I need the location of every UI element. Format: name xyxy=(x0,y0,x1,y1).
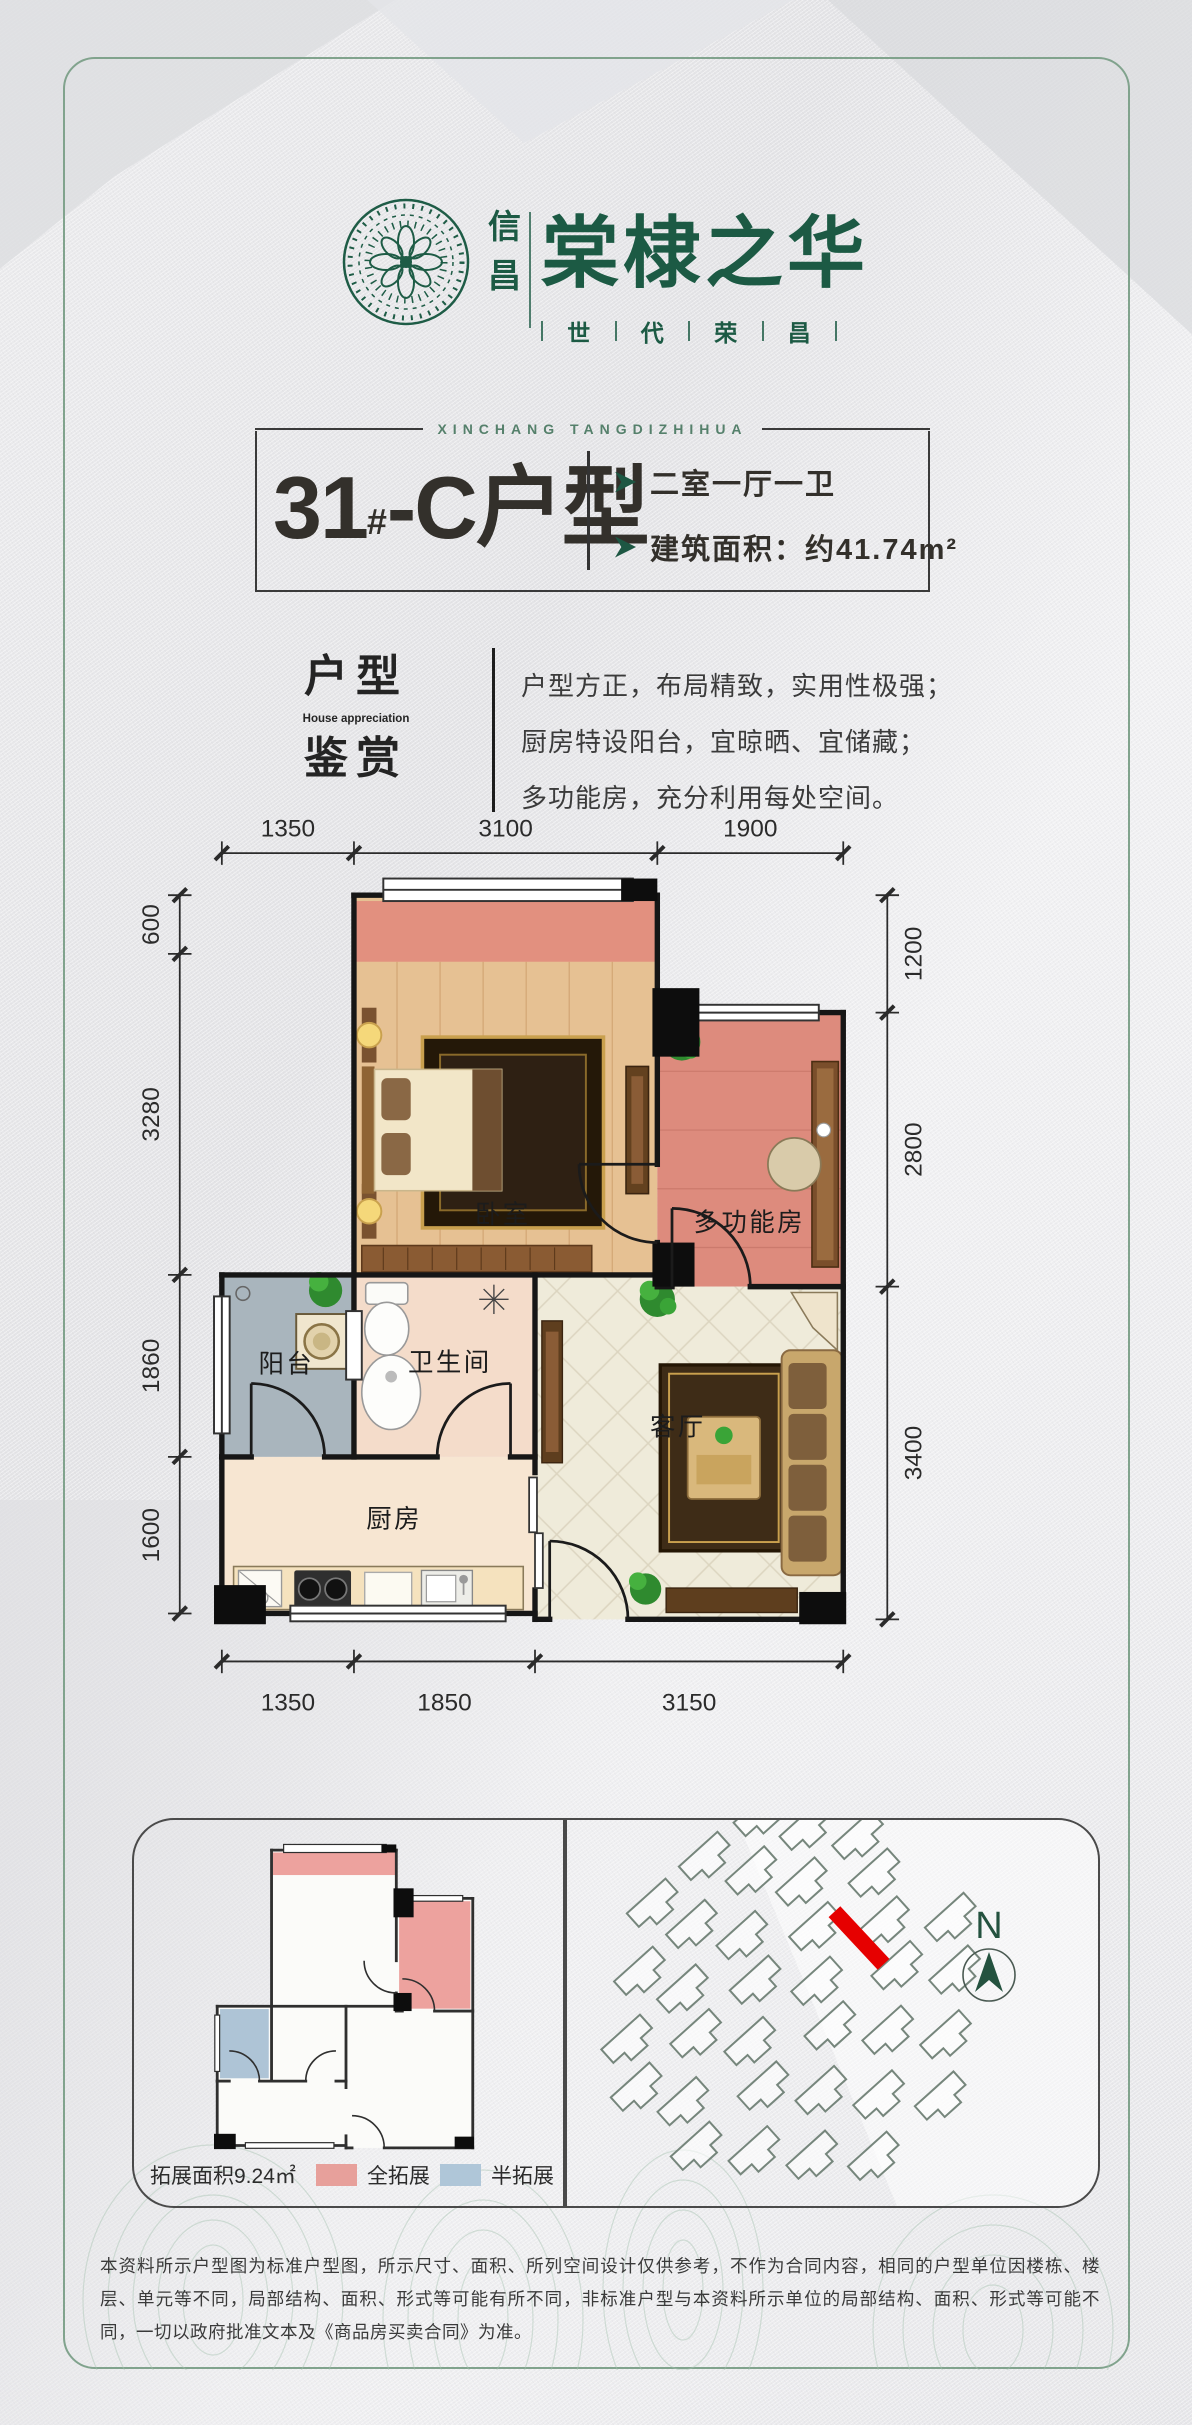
unit-sup: # xyxy=(367,501,387,542)
divider-line xyxy=(762,428,930,430)
arrow-right-icon xyxy=(615,472,636,493)
poster-page: 信 昌 棠棣之华 世 代 荣 昌 XINCHANG TANGDIZHIHUA xyxy=(0,0,1192,2425)
expansion-area-label: 拓展面积9.24㎡ xyxy=(150,2160,296,2190)
divider-line xyxy=(255,428,423,430)
logo-seal-text: 信 昌 xyxy=(488,210,521,348)
slogan-char: 荣 xyxy=(714,314,737,348)
full-expansion-swatch xyxy=(316,2164,357,2186)
room-label-multi: 多功能房 xyxy=(694,1209,806,1237)
seal-char: 信 xyxy=(488,210,521,243)
dim-bottom-1: 1350 xyxy=(261,1689,315,1716)
appreciation-line: 厨房特设阳台，宜晾晒、宜储藏； xyxy=(521,714,953,770)
appreciation-title-top: 户型 xyxy=(297,655,415,699)
dim-right-3: 3400 xyxy=(901,1426,928,1480)
appreciation-title-bottom: 鉴赏 xyxy=(297,737,415,781)
appreciation-title: 户型 House appreciation 鉴赏 xyxy=(297,655,415,781)
dim-bottom-2: 1850 xyxy=(417,1689,471,1716)
full-expansion-label: 全拓展 xyxy=(367,2160,430,2190)
unit-number: 31 xyxy=(273,458,367,557)
seal-char: 昌 xyxy=(488,259,521,292)
unit-title: 31#-C户型 xyxy=(273,433,648,583)
room-label-kitchen: 厨房 xyxy=(366,1505,422,1533)
slogan-bar xyxy=(762,321,764,341)
dim-right-2: 2800 xyxy=(901,1122,928,1176)
dim-right-1: 1200 xyxy=(901,927,928,981)
disclaimer-text: 本资料所示户型图为标准户型图，所示尺寸、面积、所列空间设计仅供参考，不作为合同内… xyxy=(100,2250,1100,2349)
brand-slogan: 世 代 荣 昌 xyxy=(541,314,837,348)
brand-name: 棠棣之华 xyxy=(541,214,869,292)
dim-top-1: 1350 xyxy=(261,815,315,842)
mini-half-expansion-balcony xyxy=(220,2009,269,2078)
floor-plan: 卧室 多功能房 阳台 卫生间 客厅 厨房 xyxy=(105,812,965,1727)
dim-left-2: 3280 xyxy=(138,1087,165,1141)
bedroom-bay-band xyxy=(354,901,657,962)
dim-left-1: 600 xyxy=(138,904,165,945)
dim-top-2: 3100 xyxy=(478,815,532,842)
mini-full-expansion-band xyxy=(273,1853,395,1876)
slogan-bar xyxy=(541,321,543,341)
slogan-bar xyxy=(688,321,690,341)
dim-bottom-3: 3150 xyxy=(662,1689,716,1716)
divider-line xyxy=(587,451,590,570)
mini-full-expansion-room xyxy=(399,1901,470,2008)
slogan-char: 昌 xyxy=(788,314,811,348)
half-expansion-label: 半拓展 xyxy=(491,2160,554,2190)
slogan-bar xyxy=(615,321,617,341)
expansion-legend: 拓展面积9.24㎡ 全拓展 半拓展 xyxy=(150,2160,554,2190)
logo-divider xyxy=(529,212,531,328)
slogan-bar xyxy=(835,321,837,341)
medallion-icon xyxy=(340,196,472,328)
slogan-char: 代 xyxy=(641,314,664,348)
slogan-char: 世 xyxy=(567,314,590,348)
compass-label: N xyxy=(975,1905,1002,1947)
feature-layout: 二室一厅一卫 xyxy=(650,461,836,503)
expansion-plan-box: 拓展面积9.24㎡ 全拓展 半拓展 xyxy=(132,1818,565,2208)
half-expansion-swatch xyxy=(440,2164,481,2186)
room-label-living: 客厅 xyxy=(650,1413,706,1441)
room-label-balcony: 阳台 xyxy=(259,1351,315,1379)
unit-suffix: -C户型 xyxy=(387,458,648,557)
expansion-mini-plan xyxy=(186,1834,506,2164)
site-plan: N xyxy=(567,1820,1098,2206)
dim-left-4: 1600 xyxy=(138,1508,165,1562)
feature-row: 二室一厅一卫 xyxy=(615,461,836,503)
appreciation-title-en: House appreciation xyxy=(297,713,415,725)
appreciation-line: 户型方正，布局精致，实用性极强； xyxy=(521,658,953,714)
room-label-bedroom: 卧室 xyxy=(475,1201,531,1229)
dim-left-3: 1860 xyxy=(138,1339,165,1393)
brand-logo: 信 昌 棠棣之华 世 代 荣 昌 xyxy=(340,196,869,348)
feature-area: 建筑面积：约41.74m² xyxy=(650,526,958,568)
site-plan-box: N xyxy=(565,1818,1100,2208)
kitchen-furniture xyxy=(234,1567,524,1610)
appreciation-text: 户型方正，布局精致，实用性极强； 厨房特设阳台，宜晾晒、宜储藏； 多功能房，充分… xyxy=(521,658,953,826)
divider-line xyxy=(492,648,495,812)
arrow-right-icon xyxy=(615,537,636,558)
room-label-bath: 卫生间 xyxy=(408,1349,492,1377)
feature-row: 建筑面积：约41.74m² xyxy=(615,526,958,568)
dim-top-3: 1900 xyxy=(723,815,777,842)
unit-title-box: 31#-C户型 二室一厅一卫 建筑面积：约41.74m² xyxy=(255,431,930,592)
